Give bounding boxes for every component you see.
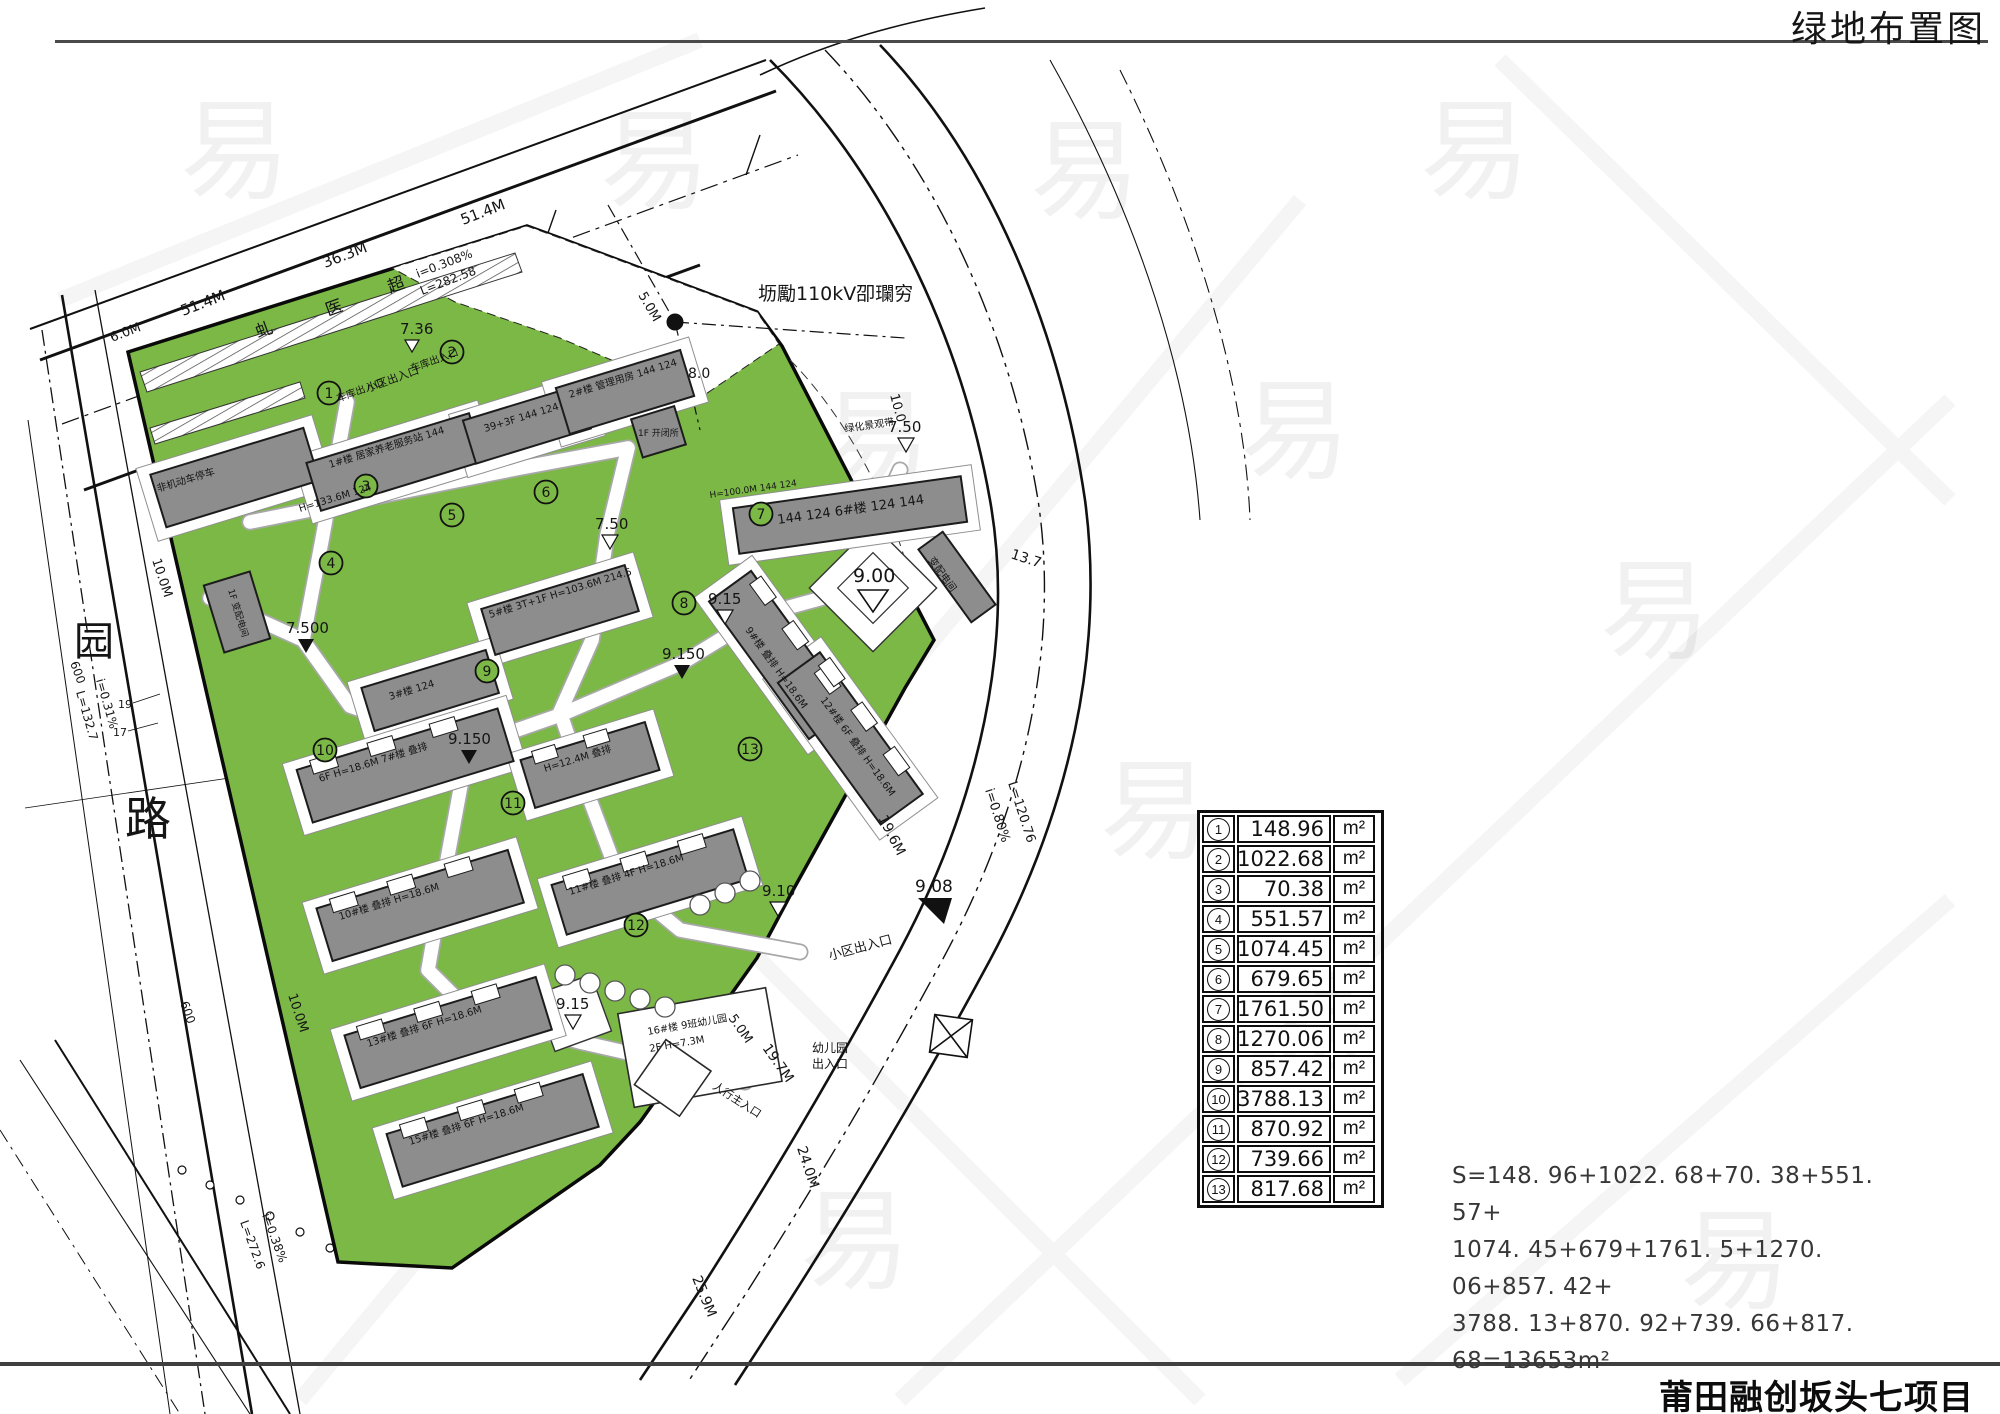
area-badge-label: 4 bbox=[327, 556, 336, 572]
dimension-label: 51.4M bbox=[458, 195, 508, 228]
dimension-label: 19 bbox=[118, 698, 132, 711]
row-badge: 1 bbox=[1202, 815, 1235, 843]
area-badge-label: 6 bbox=[542, 485, 551, 501]
row-badge-number: 1 bbox=[1207, 818, 1230, 841]
area-badge: 11 bbox=[502, 792, 525, 815]
area-value: 679.65 bbox=[1237, 965, 1331, 993]
watermark-glyph: 易 bbox=[1240, 368, 1350, 496]
entrance-label: 幼儿园 bbox=[812, 1041, 848, 1055]
area-badge-label: 7 bbox=[757, 507, 766, 523]
elevation-label: 7.50 bbox=[595, 515, 628, 533]
slope-label: i=0.31% bbox=[93, 677, 121, 730]
dimension-label: 13.7 bbox=[1009, 547, 1044, 572]
dimension-label: 6.0M bbox=[108, 320, 143, 345]
area-unit: m² bbox=[1333, 905, 1375, 933]
area-badge: 12 bbox=[625, 914, 648, 937]
area-badge: 4 bbox=[320, 552, 343, 575]
area-sum-formula: S=148. 96+1022. 68+70. 38+551. 57+ 1074.… bbox=[1452, 1158, 1882, 1380]
green-area-table: 1 148.96 m² 2 1022.68 m² 3 70.38 m² 4 55… bbox=[1197, 810, 1384, 1208]
area-value: 1270.06 bbox=[1237, 1025, 1331, 1053]
elevation-label: 9.150 bbox=[448, 730, 491, 748]
area-value: 1022.68 bbox=[1237, 845, 1331, 873]
area-value: 739.66 bbox=[1237, 1145, 1331, 1173]
row-badge-number: 13 bbox=[1207, 1178, 1230, 1201]
area-value: 817.68 bbox=[1237, 1175, 1331, 1203]
area-unit: m² bbox=[1333, 815, 1375, 843]
row-badge: 13 bbox=[1202, 1175, 1235, 1203]
watermark-glyph: 易 bbox=[600, 98, 710, 226]
table-row: 1 148.96 m² bbox=[1202, 815, 1379, 843]
elevation-label: 9.150 bbox=[662, 645, 705, 663]
area-badge-label: 10 bbox=[316, 743, 334, 759]
row-badge-number: 10 bbox=[1207, 1088, 1230, 1111]
table-row: 5 1074.45 m² bbox=[1202, 935, 1379, 963]
row-badge: 5 bbox=[1202, 935, 1235, 963]
row-badge: 11 bbox=[1202, 1115, 1235, 1143]
table-row: 4 551.57 m² bbox=[1202, 905, 1379, 933]
table-row: 13 817.68 m² bbox=[1202, 1175, 1379, 1203]
area-badge: 7 bbox=[750, 503, 773, 526]
formula-line: S=148. 96+1022. 68+70. 38+551. 57+ bbox=[1452, 1158, 1882, 1232]
row-badge-number: 3 bbox=[1207, 878, 1230, 901]
area-unit: m² bbox=[1333, 845, 1375, 873]
watermark-glyph: 易 bbox=[1100, 748, 1210, 876]
area-badge: 8 bbox=[673, 592, 696, 615]
row-badge-number: 4 bbox=[1207, 908, 1230, 931]
area-unit: m² bbox=[1333, 1055, 1375, 1083]
area-value: 870.92 bbox=[1237, 1115, 1331, 1143]
sheet-title: 绿地布置图 bbox=[1791, 0, 1986, 52]
area-badge: 6 bbox=[535, 481, 558, 504]
area-unit: m² bbox=[1333, 965, 1375, 993]
title-rule bbox=[55, 40, 1988, 43]
elevation-label: 9.08 bbox=[915, 877, 953, 897]
area-badge-label: 11 bbox=[504, 796, 522, 812]
area-unit: m² bbox=[1333, 1085, 1375, 1113]
row-badge-number: 9 bbox=[1207, 1058, 1230, 1081]
drawing-sheet: 易 易 易 易 易 易 易 易 易 易 易 易 bbox=[0, 0, 2000, 1414]
area-value: 70.38 bbox=[1237, 875, 1331, 903]
area-badge-label: 9 bbox=[483, 664, 492, 680]
area-unit: m² bbox=[1333, 1175, 1375, 1203]
area-badge-label: 8 bbox=[680, 596, 689, 612]
row-badge-number: 7 bbox=[1207, 998, 1230, 1021]
area-value: 148.96 bbox=[1237, 815, 1331, 843]
elevation-label: 7.36 bbox=[400, 320, 433, 338]
area-value: 3788.13 bbox=[1237, 1085, 1331, 1113]
watermark-glyph: 易 bbox=[1420, 88, 1530, 216]
dimension-label: 51.4M bbox=[178, 286, 228, 319]
area-badge: 9 bbox=[476, 660, 499, 683]
area-unit: m² bbox=[1333, 875, 1375, 903]
corridor-label: 坜勵110kV卲瓓穷 bbox=[758, 283, 913, 305]
dimension-label: 10.0M bbox=[148, 557, 175, 600]
row-badge: 3 bbox=[1202, 875, 1235, 903]
watermark-glyph: 易 bbox=[180, 88, 290, 216]
elevation-label: 9.15 bbox=[708, 590, 741, 608]
formula-line: 3788. 13+870. 92+739. 66+817. 68=13653m² bbox=[1452, 1306, 1882, 1380]
road-name: 园 bbox=[74, 619, 114, 665]
area-badge-label: 13 bbox=[741, 742, 759, 758]
row-badge-number: 2 bbox=[1207, 848, 1230, 871]
dimension-label: 8.0 bbox=[688, 366, 710, 382]
table-row: 12 739.66 m² bbox=[1202, 1145, 1379, 1173]
area-value: 857.42 bbox=[1237, 1055, 1331, 1083]
area-badge: 13 bbox=[739, 738, 762, 761]
row-badge-number: 6 bbox=[1207, 968, 1230, 991]
table-row: 2 1022.68 m² bbox=[1202, 845, 1379, 873]
area-badge-label: 12 bbox=[627, 918, 645, 934]
watermark-glyph: 易 bbox=[1600, 548, 1710, 676]
entrance-label: 出入口 bbox=[812, 1057, 848, 1071]
row-badge-number: 8 bbox=[1207, 1028, 1230, 1051]
area-unit: m² bbox=[1333, 1115, 1375, 1143]
table-row: 9 857.42 m² bbox=[1202, 1055, 1379, 1083]
building-label: 1F 开闭所 bbox=[638, 427, 679, 439]
row-badge: 7 bbox=[1202, 995, 1235, 1023]
area-badge: 10 bbox=[314, 739, 337, 762]
row-badge: 9 bbox=[1202, 1055, 1235, 1083]
area-unit: m² bbox=[1333, 935, 1375, 963]
area-unit: m² bbox=[1333, 1145, 1375, 1173]
road-name: 路 bbox=[125, 792, 171, 846]
row-badge: 6 bbox=[1202, 965, 1235, 993]
area-value: 551.57 bbox=[1237, 905, 1331, 933]
row-badge: 8 bbox=[1202, 1025, 1235, 1053]
formula-line: 1074. 45+679+1761. 5+1270. 06+857. 42+ bbox=[1452, 1232, 1882, 1306]
table-row: 8 1270.06 m² bbox=[1202, 1025, 1379, 1053]
elevation-label: 7.500 bbox=[286, 619, 329, 637]
elevation-label: 9.00 bbox=[853, 565, 895, 587]
row-badge-number: 5 bbox=[1207, 938, 1230, 961]
row-badge: 12 bbox=[1202, 1145, 1235, 1173]
area-value: 1761.50 bbox=[1237, 995, 1331, 1023]
area-unit: m² bbox=[1333, 1025, 1375, 1053]
area-value: 1074.45 bbox=[1237, 935, 1331, 963]
row-badge-number: 11 bbox=[1207, 1118, 1230, 1141]
table-row: 11 870.92 m² bbox=[1202, 1115, 1379, 1143]
row-badge-number: 12 bbox=[1207, 1148, 1230, 1171]
area-badge-label: 5 bbox=[448, 508, 457, 524]
dimension-label: 36.3M bbox=[320, 238, 370, 271]
table-row: 3 70.38 m² bbox=[1202, 875, 1379, 903]
table-row: 6 679.65 m² bbox=[1202, 965, 1379, 993]
entrance-label: 小区出入口 bbox=[827, 933, 894, 964]
dimension-label: 25.9M bbox=[688, 1274, 719, 1320]
area-unit: m² bbox=[1333, 995, 1375, 1023]
area-badge: 5 bbox=[441, 504, 464, 527]
row-badge: 4 bbox=[1202, 905, 1235, 933]
dimension-label: 600 bbox=[177, 999, 198, 1025]
dimension-label: 24.0M bbox=[793, 1144, 822, 1190]
road-cross-symbol bbox=[930, 1015, 973, 1058]
elevation-label: 9.10 bbox=[762, 882, 795, 900]
area-badge-label: 1 bbox=[325, 386, 334, 402]
table-row: 7 1761.50 m² bbox=[1202, 995, 1379, 1023]
elevation-label: 9.15 bbox=[556, 995, 589, 1013]
table-row: 10 3788.13 m² bbox=[1202, 1085, 1379, 1113]
row-badge: 10 bbox=[1202, 1085, 1235, 1113]
row-badge: 2 bbox=[1202, 845, 1235, 873]
